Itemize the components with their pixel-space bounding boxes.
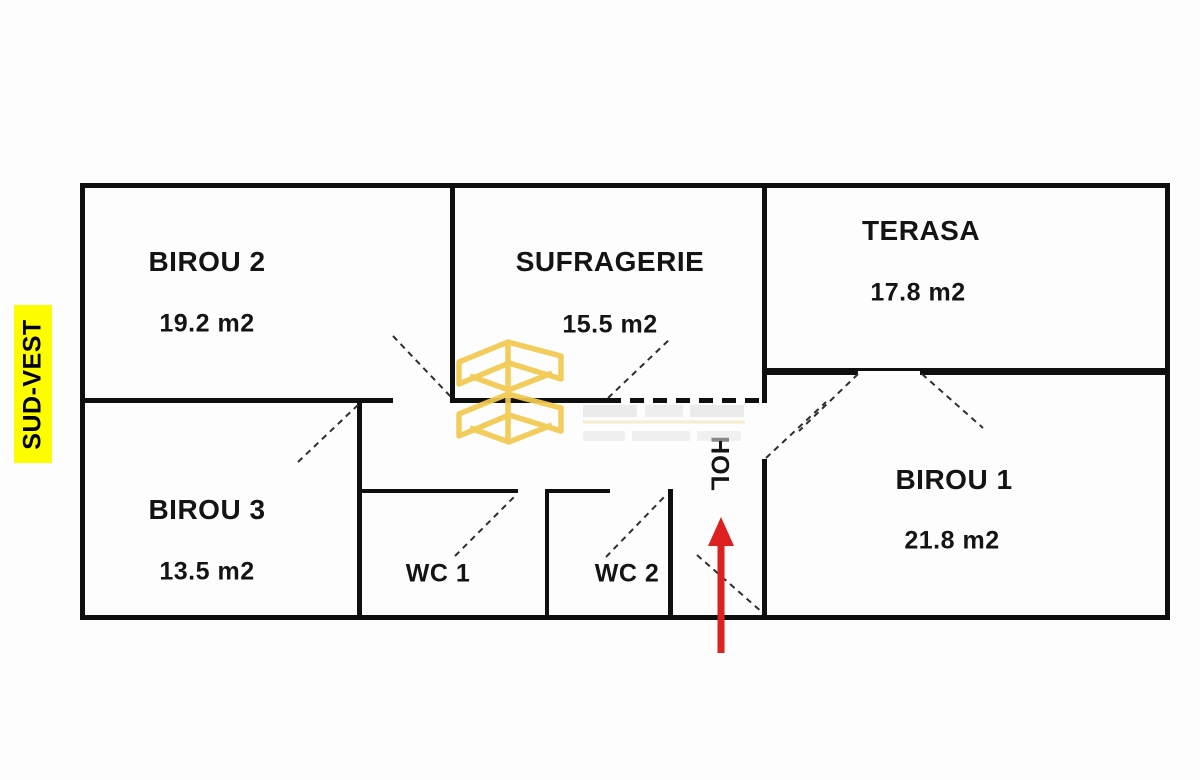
room-label-birou1: BIROU 1 [895, 464, 1012, 496]
room-label-sufragerie: SUFRAGERIE [516, 246, 705, 278]
room-label-birou2: BIROU 2 [148, 246, 265, 278]
wall-outer-right [1165, 183, 1170, 620]
orientation-label: SUD-VEST [14, 305, 52, 463]
wall-wc-top-right [545, 489, 610, 493]
wall-terasa-birou1 [762, 368, 1170, 375]
floor-plan: SUD-VEST BIROU 2 19.2 m2 SUFRAGERIE 15.5… [0, 0, 1200, 780]
room-label-terasa: TERASA [862, 215, 980, 247]
room-label-wc2: WC 2 [595, 560, 660, 589]
room-label-wc1: WC 1 [406, 560, 471, 589]
room-region-birou2 [85, 188, 450, 398]
door-gap-terasa-birou1 [858, 371, 920, 375]
wall-wc-divider [545, 489, 549, 620]
wall-hol-birou1 [762, 459, 767, 620]
room-label-birou3: BIROU 3 [148, 494, 265, 526]
orientation-label-text: SUD-VEST [19, 319, 48, 449]
room-region-wc2 [550, 493, 668, 615]
wall-wc-top-left [357, 489, 518, 493]
wall-outer-bottom [80, 615, 1170, 620]
room-region-wc1 [362, 493, 545, 615]
room-area-birou1: 21.8 m2 [904, 527, 999, 556]
wall-birou3-right [357, 400, 362, 620]
room-area-birou3: 13.5 m2 [159, 558, 254, 587]
wall-mid-opening-dashed [607, 398, 762, 403]
wall-mid-center [450, 398, 607, 403]
room-area-birou2: 19.2 m2 [159, 310, 254, 339]
room-area-sufragerie: 15.5 m2 [562, 311, 657, 340]
wall-outer-top [80, 183, 1170, 188]
room-area-terasa: 17.8 m2 [870, 279, 965, 308]
room-region-hol [673, 403, 762, 615]
wall-mid-left [80, 398, 393, 403]
wall-birou2-sufragerie [450, 183, 455, 403]
wall-wc2-hol [668, 489, 673, 620]
room-region-sufragerie [455, 188, 762, 398]
room-label-hol: HOL [705, 436, 734, 492]
